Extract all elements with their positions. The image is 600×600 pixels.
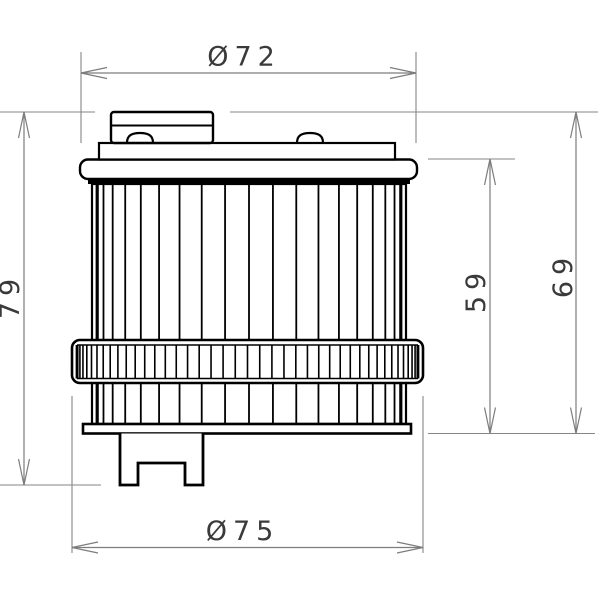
dim-label-case-height: 69 bbox=[548, 252, 579, 298]
bottom-plate bbox=[83, 424, 411, 434]
dim-label-bottom-diameter: Ø75 bbox=[206, 516, 280, 547]
top-cap bbox=[111, 112, 213, 143]
mounting-flange bbox=[99, 143, 395, 160]
drawing-canvas: Ø72 Ø75 79 59 69 bbox=[0, 0, 600, 600]
right-rivet-dome bbox=[297, 133, 323, 143]
filter-part bbox=[72, 112, 423, 485]
top-band bbox=[80, 160, 417, 180]
technical-drawing-oil-filter: Ø72 Ø75 79 59 69 bbox=[0, 0, 600, 600]
dim-label-overall-height: 79 bbox=[0, 273, 26, 319]
dim-label-top-diameter: Ø72 bbox=[207, 42, 281, 73]
bottom-spigot bbox=[120, 434, 203, 486]
dim-label-body-height: 59 bbox=[461, 267, 492, 313]
